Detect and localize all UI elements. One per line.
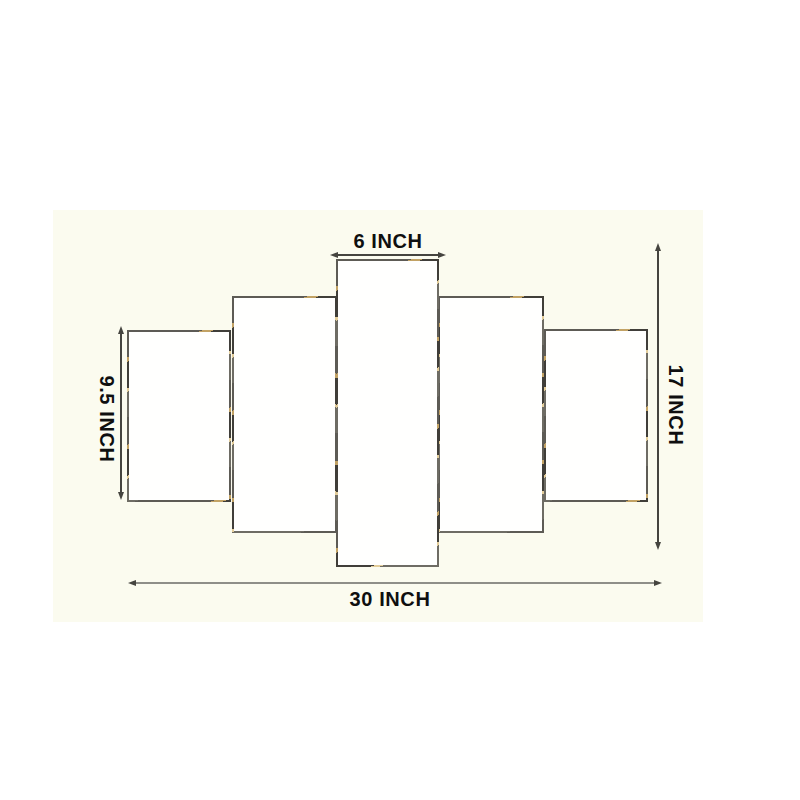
panel-3-center-canvas bbox=[336, 259, 439, 567]
left-panel-height-label: 9.5 INCH bbox=[96, 369, 118, 469]
panel-1-canvas bbox=[127, 330, 231, 502]
left-height-dimension-line bbox=[120, 333, 122, 493]
right-height-dimension-line bbox=[657, 250, 659, 543]
panel-4-canvas bbox=[438, 296, 544, 533]
top-width-dimension-line bbox=[337, 254, 439, 256]
panel-5-canvas bbox=[544, 329, 648, 502]
total-height-label: 17 INCH bbox=[665, 355, 687, 455]
total-width-label: 30 INCH bbox=[290, 588, 490, 610]
bottom-width-dimension-line bbox=[135, 582, 655, 584]
product-dimension-diagram: 6 INCH 9.5 INCH 17 INCH 30 INCH bbox=[0, 0, 800, 800]
panel-2-canvas bbox=[232, 296, 337, 533]
top-width-label: 6 INCH bbox=[333, 230, 443, 252]
